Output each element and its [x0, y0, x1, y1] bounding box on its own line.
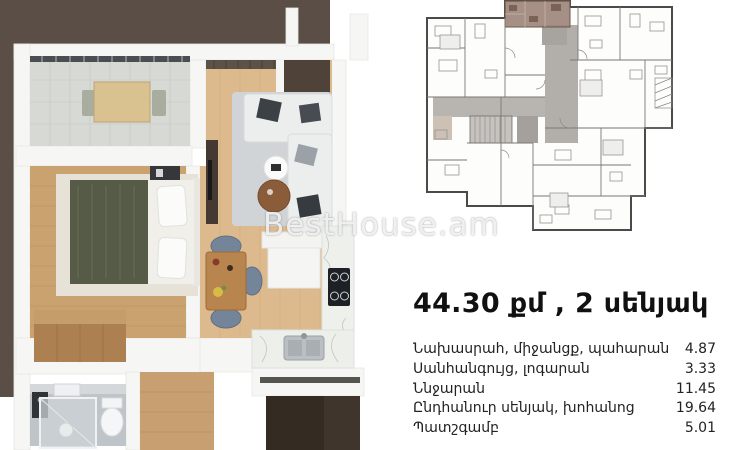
kitchen-sink [284, 333, 324, 360]
bedroom [30, 166, 202, 362]
area-row: Ընդհանուր սենյակ, խոհանոց 19.64 [413, 399, 716, 419]
bed-blanket [70, 180, 148, 284]
area-label: Նախասրահ, միջանցք, պահարան [413, 340, 669, 360]
faucet [301, 333, 307, 339]
corridor-band [433, 97, 545, 117]
area-value: 5.01 [685, 419, 716, 439]
dining-chair [211, 308, 241, 328]
area-value: 3.33 [685, 360, 716, 380]
entry [266, 396, 360, 450]
area-label: Ննջարան [413, 380, 485, 400]
entry-lobby [433, 116, 452, 140]
listing-image: BestHouse.am 44.30 քմ , 2 սենյակ Նախասրա… [0, 0, 730, 450]
area-row: Պատշգամբ 5.01 [413, 419, 716, 439]
apartment-3d-plan [0, 0, 405, 450]
shower [40, 398, 96, 448]
curtain-band [206, 60, 282, 69]
flower-vase [213, 287, 223, 297]
table-plate [213, 259, 220, 266]
area-row: Ննջարան 11.45 [413, 380, 716, 400]
area-value: 4.87 [685, 340, 716, 360]
shower-drain [59, 423, 73, 437]
highlighted-unit [505, 1, 570, 27]
area-value: 19.64 [676, 399, 716, 419]
balcony [30, 56, 190, 146]
area-label: Պատշգամբ [413, 419, 499, 439]
hallway-floor [140, 372, 214, 450]
wardrobe [34, 310, 126, 362]
table-decor [267, 189, 273, 195]
toilet [101, 398, 123, 436]
backdrop-left [0, 0, 14, 397]
bed-pillow [157, 185, 188, 227]
coffee-table-brown [258, 180, 290, 212]
stairwell [470, 116, 512, 143]
coffee-table-books [271, 164, 281, 171]
flower-leaf [222, 286, 227, 291]
area-label: Սանհանգույց, լոգարան [413, 360, 590, 380]
sofa-pillow [296, 194, 321, 218]
area-table: Նախասրահ, միջանցք, պահարան 4.87 Սանհանգո… [413, 340, 716, 439]
area-row: Սանհանգույց, լոգարան 3.33 [413, 360, 716, 380]
balcony-glass-wall [30, 56, 190, 62]
balcony-table [94, 82, 150, 122]
sofa-pillow [299, 103, 321, 124]
side-desk [268, 248, 320, 288]
rack-detail [156, 169, 163, 177]
counter-shadow [260, 377, 360, 383]
balcony-chair-right [152, 90, 166, 116]
elevator-shaft [542, 25, 567, 45]
area-label: Ընդհանուր սենյակ, խոհանոց [413, 399, 635, 419]
entry-shadow [266, 396, 324, 450]
building-floor-plan [405, 0, 675, 248]
bed-pillow [157, 237, 187, 278]
clothes-rack [150, 166, 180, 180]
area-row: Նախասրահ, միջանցք, պահարան 4.87 [413, 340, 716, 360]
bathroom-sink [54, 384, 80, 396]
stove [328, 268, 350, 306]
bathroom [30, 384, 126, 448]
dining-table [206, 252, 246, 310]
table-cup [227, 265, 233, 271]
service-shaft [517, 116, 538, 143]
listing-title: 44.30 քմ , 2 սենյակ [413, 288, 716, 319]
listing-info: 44.30 քմ , 2 սենյակ Նախասրահ, միջանցք, պ… [413, 288, 716, 439]
hallway [140, 372, 214, 450]
tv [208, 160, 212, 200]
area-value: 11.45 [676, 380, 716, 400]
bed [70, 178, 202, 286]
